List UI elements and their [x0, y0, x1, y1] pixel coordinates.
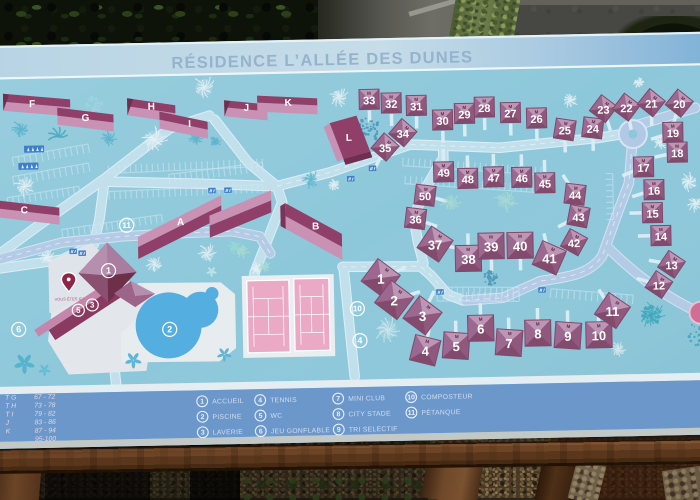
svg-text:16: 16 [648, 186, 660, 198]
svg-text:6: 6 [259, 429, 263, 436]
svg-text:ACCUEIL: ACCUEIL [212, 398, 244, 406]
svg-text:4: 4 [258, 398, 262, 405]
svg-text:2: 2 [200, 414, 204, 421]
svg-text:T H: T H [5, 403, 16, 410]
svg-text:44: 44 [569, 190, 582, 202]
svg-text:13: 13 [665, 261, 677, 273]
svg-text:28: 28 [478, 103, 490, 115]
svg-text:25: 25 [559, 126, 571, 138]
svg-text:K: K [284, 98, 292, 109]
svg-text:35: 35 [379, 143, 391, 155]
svg-text:PÉTANQUE: PÉTANQUE [421, 407, 461, 417]
svg-text:8: 8 [336, 412, 340, 419]
svg-text:4: 4 [421, 344, 429, 359]
svg-text:33: 33 [363, 96, 375, 108]
svg-text:31: 31 [410, 102, 422, 114]
svg-text:17: 17 [637, 163, 649, 175]
svg-text:83 - 86: 83 - 86 [35, 419, 57, 426]
svg-text:47: 47 [488, 173, 500, 185]
svg-text:T I: T I [5, 412, 13, 419]
svg-text:15: 15 [646, 209, 658, 221]
svg-text:18: 18 [671, 148, 683, 160]
svg-text:TENNIS: TENNIS [270, 397, 297, 405]
svg-text:2: 2 [390, 294, 398, 309]
svg-text:B: B [312, 222, 319, 233]
svg-text:40: 40 [513, 239, 528, 254]
svg-text:5: 5 [76, 306, 81, 315]
svg-text:LAVERIE: LAVERIE [213, 429, 244, 437]
svg-text:46: 46 [516, 173, 528, 185]
svg-text:G: G [81, 113, 89, 124]
svg-text:5: 5 [258, 413, 262, 420]
svg-text:26: 26 [530, 114, 542, 126]
svg-text:PISCINE: PISCINE [212, 414, 242, 422]
svg-text:19: 19 [667, 128, 679, 140]
svg-text:6: 6 [16, 325, 21, 335]
svg-text:1: 1 [106, 266, 111, 276]
svg-text:T G: T G [5, 395, 16, 402]
svg-text:MINI CLUB: MINI CLUB [348, 395, 385, 403]
svg-text:50: 50 [419, 191, 431, 203]
svg-text:10: 10 [407, 395, 415, 402]
svg-text:7: 7 [336, 396, 340, 403]
svg-text:38: 38 [461, 252, 476, 267]
svg-text:20: 20 [673, 99, 685, 111]
svg-text:41: 41 [542, 251, 557, 266]
svg-text:CITY STADE: CITY STADE [348, 411, 391, 419]
svg-text:22: 22 [620, 103, 632, 115]
svg-text:34: 34 [397, 129, 410, 141]
svg-text:21: 21 [645, 99, 657, 111]
svg-text:F: F [29, 99, 35, 110]
svg-text:3: 3 [419, 309, 427, 324]
svg-text:7: 7 [505, 336, 513, 351]
svg-text:48: 48 [462, 175, 474, 187]
svg-text:11: 11 [605, 304, 619, 319]
svg-text:45: 45 [539, 179, 551, 191]
svg-text:39: 39 [484, 240, 499, 255]
svg-text:27: 27 [504, 109, 516, 121]
svg-text:4: 4 [357, 336, 362, 346]
svg-text:K: K [6, 429, 11, 436]
svg-text:23: 23 [597, 105, 609, 117]
svg-text:WC: WC [270, 413, 282, 420]
svg-text:30: 30 [436, 116, 448, 128]
svg-text:73 - 78: 73 - 78 [34, 403, 56, 410]
svg-text:14: 14 [655, 232, 668, 244]
svg-text:2: 2 [167, 325, 172, 335]
svg-text:J: J [5, 420, 10, 427]
svg-text:11: 11 [408, 410, 416, 417]
svg-text:C: C [21, 206, 28, 217]
svg-text:43: 43 [572, 212, 584, 224]
svg-text:10: 10 [353, 305, 363, 314]
svg-text:12: 12 [653, 281, 665, 293]
svg-text:79 - 82: 79 - 82 [34, 411, 56, 418]
svg-text:3: 3 [201, 430, 205, 437]
svg-text:9: 9 [564, 329, 572, 344]
svg-text:6: 6 [477, 322, 485, 337]
svg-text:9: 9 [337, 427, 341, 434]
svg-text:49: 49 [437, 168, 449, 180]
svg-text:24: 24 [587, 124, 600, 136]
svg-text:5: 5 [452, 339, 460, 354]
svg-text:11: 11 [122, 221, 131, 230]
svg-text:A: A [177, 217, 184, 228]
svg-text:I: I [188, 119, 191, 130]
svg-text:67 - 72: 67 - 72 [34, 394, 56, 401]
svg-text:H: H [148, 102, 155, 113]
svg-text:37: 37 [428, 238, 443, 253]
svg-text:95-100: 95-100 [35, 436, 57, 443]
svg-text:42: 42 [568, 238, 580, 250]
svg-text:32: 32 [385, 99, 397, 111]
svg-text:10: 10 [592, 328, 607, 343]
svg-text:8: 8 [534, 327, 542, 342]
svg-text:J: J [243, 103, 249, 114]
svg-text:29: 29 [458, 110, 470, 122]
svg-text:1: 1 [377, 272, 385, 287]
svg-text:L: L [346, 133, 352, 144]
svg-text:1: 1 [200, 399, 204, 406]
svg-text:87 - 94: 87 - 94 [35, 428, 57, 435]
svg-text:36: 36 [409, 215, 421, 227]
svg-text:3: 3 [90, 301, 95, 310]
